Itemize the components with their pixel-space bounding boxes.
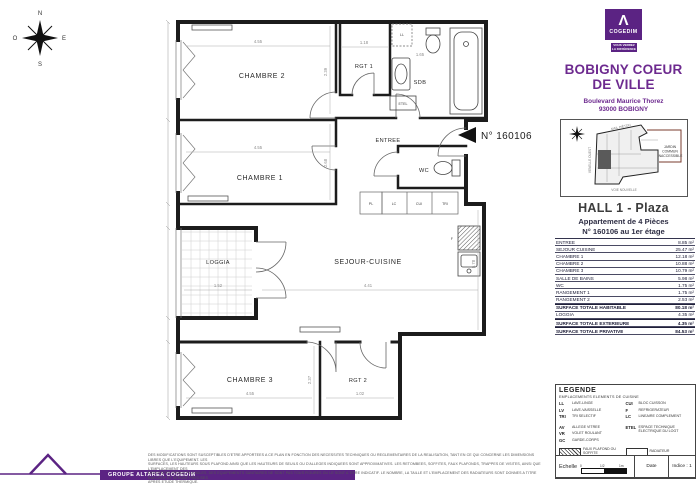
floor-plan: N E S O <box>0 0 547 455</box>
abbr-value: VOLET ROULANT <box>572 431 602 436</box>
room-label-chambre1: CHAMBRE 1 <box>237 175 283 182</box>
area-label: SURFACE TOTALE PRIVATIVE <box>556 329 623 334</box>
footer-disclaimer: DES MODIFICATIONS SONT SUSCEPTIBLES D'ET… <box>148 453 542 485</box>
site-unit-highlight <box>598 150 611 169</box>
abbr-key: AV <box>559 425 572 430</box>
altarea-logo-icon <box>0 452 100 480</box>
area-row: RANGEMENT 11.75 m² <box>555 289 695 296</box>
legend-item: AVALLEGE VITREE <box>559 425 626 430</box>
legend-title: LEGENDE <box>556 385 695 395</box>
toilet-wc <box>434 160 460 176</box>
scale-strip: Echelle 0 1/2 1m Date Indice : 1 <box>555 455 696 478</box>
abbr-value: LAVE-LINGE <box>572 401 593 406</box>
label-etel: ETEL <box>399 102 408 106</box>
area-row: SALLE DE BAINS5.98 m² <box>555 275 695 282</box>
legend-item: TRITRI SELECTIF <box>559 414 626 419</box>
address-line2: 93000 BOBIGNY <box>547 106 700 114</box>
area-value: 25.47 m² <box>676 247 695 252</box>
scale-tick-half: 1/2 <box>600 464 604 468</box>
site-jardin-line2: COMMUN <box>662 150 678 154</box>
area-value: 10.88 m² <box>676 261 695 266</box>
area-row: SEJOUR CUISINE25.47 m² <box>555 246 695 253</box>
disclaimer-line: SURFACES, LES HAUTEURS SOUS PLAFOND AINS… <box>148 462 542 471</box>
site-plan-drawing: JARDIN COMMUN INACCESSIBLE MAIL PIÉTON V… <box>561 120 687 196</box>
abbr-key: LL <box>559 401 572 406</box>
area-row-total-habitable: SURFACE TOTALE HABITABLE80.18 m² <box>555 304 695 312</box>
site-building-footprint <box>595 125 658 184</box>
project-title: BOBIGNY COEUR DE VILLE <box>547 62 700 92</box>
area-value: 2.53 m² <box>678 297 694 302</box>
area-label: CHAMBRE 1 <box>556 254 583 259</box>
washbasin <box>392 58 410 90</box>
compass-s: S <box>38 62 42 68</box>
cogedim-logo: Λ COGEDIM <box>605 9 642 40</box>
scale-bar-segments <box>581 468 627 474</box>
compass-rose-icon: N E S O <box>13 11 66 68</box>
dim-chambre2-w: 4.55 <box>254 39 263 44</box>
window-chambre1 <box>176 133 195 193</box>
label-cui: CUI <box>416 202 422 206</box>
legend-item: GCGARDE-CORPS <box>559 438 626 443</box>
abbr-value: ALLEGE VITREE <box>572 425 600 430</box>
room-label-sdb: SDB <box>414 80 427 86</box>
site-jardin-line3: INACCESSIBLE <box>658 154 683 158</box>
label-tri: TRI <box>442 202 448 206</box>
area-row: CHAMBRE 112.18 m² <box>555 253 695 260</box>
area-label: SURFACE TOTALE HABITABLE <box>556 305 626 310</box>
dim-sejour-w: 4.41 <box>364 283 373 288</box>
label-f: F <box>451 237 454 241</box>
area-value: 1.75 m² <box>678 283 694 288</box>
loggia-railing <box>176 228 181 318</box>
date-cell: Date <box>635 456 669 477</box>
area-value: 4.35 m² <box>678 321 694 326</box>
room-label-sejour: SEJOUR-CUISINE <box>334 259 402 266</box>
area-label: CHAMBRE 3 <box>556 268 583 273</box>
legend-item: LLLAVE-LINGE <box>559 401 626 406</box>
swatch-label: RADIATEUR <box>650 450 670 454</box>
abbr-value: REFRIGERATEUR <box>639 408 669 413</box>
area-label: ENTREE <box>556 240 575 245</box>
outer-walls <box>178 22 486 418</box>
area-value: 5.98 m² <box>678 276 694 281</box>
dim-sdb-w: 1.65 <box>416 52 425 57</box>
cogedim-brand-label: COGEDIM <box>609 29 637 35</box>
legend-item: FREFRIGERATEUR <box>626 408 693 413</box>
area-row-total-exterieure: SURFACE TOTALE EXTERIEURE4.35 m² <box>555 319 695 327</box>
scale-label: Echelle <box>559 464 577 470</box>
area-value: 84.53 m² <box>675 329 694 334</box>
site-jardin-line1: JARDIN <box>664 145 677 149</box>
area-value: 8.85 m² <box>678 240 694 245</box>
address-line1: Boulevard Maurice Thorez <box>547 98 700 106</box>
label-ll: LL <box>400 33 404 37</box>
area-row-total-privative: SURFACE TOTALE PRIVATIVE84.53 m² <box>555 327 695 335</box>
area-label: SEJOUR CUISINE <box>556 247 595 252</box>
abbr-key: GC <box>559 438 572 443</box>
project-title-line1: BOBIGNY COEUR <box>547 62 700 77</box>
bathtub <box>450 28 482 114</box>
abbr-key: VR <box>559 431 572 436</box>
area-value: 12.18 m² <box>676 254 695 259</box>
right-panel: Λ COGEDIM VOUS VERREZ LA DIFFÉRENCE BOBI… <box>547 0 700 491</box>
room-label-wc: WC <box>419 168 429 174</box>
area-value: 80.18 m² <box>675 305 694 310</box>
unit-arrow: N° 160106 <box>458 127 532 143</box>
legend-item: LCLINEAIRE COMPLEMENT <box>626 414 693 419</box>
area-row: RANGEMENT 22.53 m² <box>555 297 695 304</box>
area-row: ENTREE8.85 m² <box>555 239 695 246</box>
abbr-key: LV <box>559 408 572 413</box>
dim-chambre1-w: 4.55 <box>254 145 263 150</box>
abbr-value: GARDE-CORPS <box>572 438 599 443</box>
dim-chambre2-h: 2.39 <box>323 67 328 76</box>
disclaimer-line: DES MODIFICATIONS SONT SUSCEPTIBLES D'ET… <box>148 453 542 462</box>
hall-title: HALL 1 - Plaza <box>547 201 700 215</box>
scale-tick-0: 0 <box>580 464 582 468</box>
abbr-key: F <box>626 408 639 413</box>
label-lc: LC <box>392 202 397 206</box>
legend-item: ETELESPACE TECHNIQUE ÉLECTRIQUE DU LOGT <box>626 425 693 433</box>
loggia-tiles <box>182 230 252 316</box>
abbr-value: TRI SELECTIF <box>572 414 596 419</box>
radiators <box>188 25 340 413</box>
abbr-key: LC <box>626 414 639 419</box>
abbr-value: ESPACE TECHNIQUE ÉLECTRIQUE DU LOGT <box>639 425 693 433</box>
window-chambre2 <box>176 40 195 100</box>
compass-e: E <box>62 36 66 42</box>
compass-o: O <box>13 36 18 42</box>
project-address: Boulevard Maurice Thorez 93000 BOBIGNY <box>547 98 700 113</box>
room-label-chambre3: CHAMBRE 3 <box>227 377 273 384</box>
dimension-chain <box>166 20 170 420</box>
area-label: WC <box>556 283 564 288</box>
toilet-sdb <box>426 28 440 53</box>
area-row: CHAMBRE 310.79 m² <box>555 268 695 275</box>
window-chambre3 <box>176 352 195 408</box>
scale-cell: Echelle 0 1/2 1m <box>556 456 635 477</box>
legend-item: VRVOLET ROULANT <box>559 431 626 436</box>
dim-rgt1-w: 1.18 <box>360 40 369 45</box>
tagline-line2: LA DIFFÉRENCE <box>611 48 637 52</box>
fridge-slot <box>458 226 480 250</box>
abbr-key: TRI <box>559 414 572 419</box>
disclaimer-line: DESCENTES D'EAUX PLUVIALES, DES EQUIPEME… <box>148 471 542 480</box>
interior-walls <box>178 22 486 418</box>
area-row: LOGGIA4.35 m² <box>555 312 695 319</box>
area-label: RANGEMENT 2 <box>556 297 590 302</box>
dim-chambre1-h: 2.68 <box>323 158 328 167</box>
site-street-bottom: VOIE NOUVELLE <box>611 188 637 192</box>
label-pl: PL <box>369 202 373 206</box>
abbr-value: BLOC CUISSON <box>639 401 666 406</box>
room-label-rgt2: RGT 2 <box>349 378 367 384</box>
area-label: SURFACE TOTALE EXTERIEURE <box>556 321 629 326</box>
cogedim-logo-icon: Λ <box>618 14 628 27</box>
site-compass-icon <box>569 126 585 142</box>
area-label: RANGEMENT 1 <box>556 290 590 295</box>
area-label: CHAMBRE 2 <box>556 261 583 266</box>
legend-item: CUIBLOC CUISSON <box>626 401 693 406</box>
area-row: WC1.75 m² <box>555 282 695 289</box>
legend-item: LVLAVE-VAISSELLE <box>559 408 626 413</box>
area-value: 1.75 m² <box>678 290 694 295</box>
legend-col-right: CUIBLOC CUISSON FREFRIGERATEUR LCLINEAIR… <box>626 401 693 445</box>
dim-sejour-h: 5.78 <box>471 259 476 268</box>
compass-n: N <box>38 11 42 17</box>
room-label-entree: ENTREE <box>375 138 400 144</box>
area-value: 10.79 m² <box>676 268 695 273</box>
dim-chambre3-h: 2.37 <box>307 375 312 384</box>
legend-abbreviations: LLLAVE-LINGE LVLAVE-VAISSELLE TRITRI SEL… <box>556 401 695 445</box>
dim-rgt2-w: 1.02 <box>356 391 365 396</box>
abbr-key: ETEL <box>626 425 639 433</box>
kitchen-sink <box>458 252 480 276</box>
abbr-key: CUI <box>626 401 639 406</box>
abbr-value: LAVE-VAISSELLE <box>572 408 601 413</box>
dim-chambre3-w: 4.55 <box>246 391 255 396</box>
legend-col-left: LLLAVE-LINGE LVLAVE-VAISSELLE TRITRI SEL… <box>559 401 626 445</box>
scale-tick-1m: 1m <box>619 464 623 468</box>
scale-bar: 0 1/2 1m <box>581 464 625 474</box>
project-title-line2: DE VILLE <box>547 77 700 92</box>
area-row: CHAMBRE 210.88 m² <box>555 261 695 268</box>
area-table: ENTREE8.85 m² SEJOUR CUISINE25.47 m² CHA… <box>555 238 695 335</box>
unit-number-label: N° 160106 <box>481 131 532 142</box>
room-label-loggia: LOGGIA <box>206 260 230 266</box>
cogedim-tagline: VOUS VERREZ LA DIFFÉRENCE <box>611 43 637 52</box>
apartment-type: Appartement de 4 Pièces <box>547 217 700 226</box>
plan-sheet: N E S O <box>0 0 700 491</box>
site-plan: JARDIN COMMUN INACCESSIBLE MAIL PIÉTON V… <box>560 119 688 197</box>
area-value: 4.35 m² <box>678 312 694 317</box>
apartment-number: N° 160106 au 1er étage <box>547 227 700 236</box>
abbr-value: LINEAIRE COMPLEMENT <box>639 414 682 419</box>
dim-loggia-w: 1.52 <box>214 283 223 288</box>
room-label-rgt1: RGT 1 <box>355 64 373 70</box>
disclaimer-line: APRES ETUDE THERMIQUE. <box>148 480 542 485</box>
room-label-chambre2: CHAMBRE 2 <box>239 73 285 80</box>
area-label: LOGGIA <box>556 312 574 317</box>
indice-cell: Indice : 1 <box>669 456 695 477</box>
site-street-left: VENELLE OUEST <box>588 147 592 173</box>
area-label: SALLE DE BAINS <box>556 276 594 281</box>
